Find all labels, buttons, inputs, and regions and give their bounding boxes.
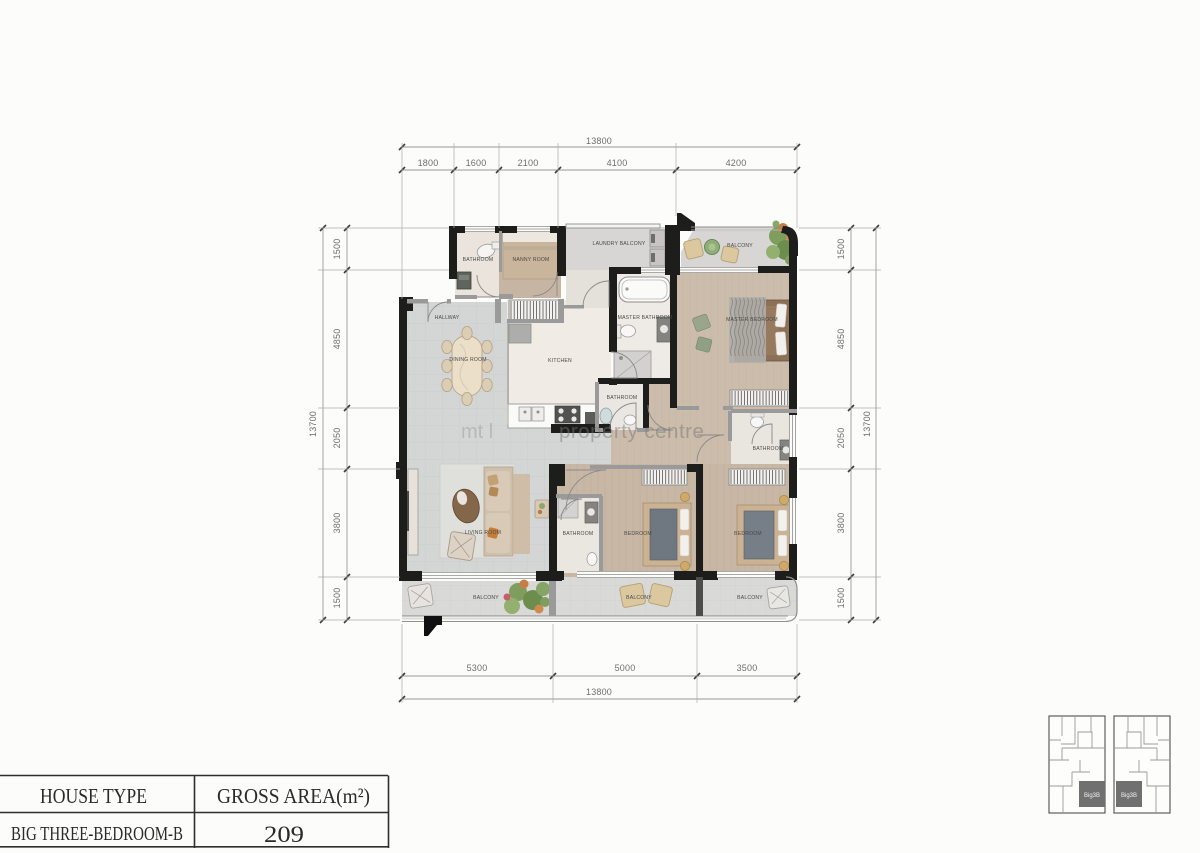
svg-text:BATHROOM: BATHROOM	[753, 446, 784, 452]
svg-text:BATHROOM: BATHROOM	[463, 257, 494, 263]
svg-text:NANNY ROOM: NANNY ROOM	[513, 257, 550, 263]
svg-text:mt l: mt l	[461, 421, 493, 443]
svg-text:BIG THREE-BEDROOM-B: BIG THREE-BEDROOM-B	[11, 824, 183, 845]
svg-text:13800: 13800	[586, 136, 612, 146]
svg-text:MASTER BATHROOM: MASTER BATHROOM	[618, 315, 673, 321]
svg-text:HALLWAY: HALLWAY	[435, 315, 460, 321]
svg-text:Big3B: Big3B	[1121, 793, 1137, 799]
svg-text:13700: 13700	[862, 411, 872, 437]
svg-text:13700: 13700	[308, 411, 318, 437]
svg-text:BALCONY: BALCONY	[727, 243, 753, 249]
svg-text:MASTER BEDROOM: MASTER BEDROOM	[726, 317, 778, 323]
svg-text:1500: 1500	[836, 588, 846, 609]
svg-text:BEDROOM: BEDROOM	[624, 531, 652, 537]
svg-text:BEDROOM: BEDROOM	[734, 531, 762, 537]
svg-text:3800: 3800	[836, 513, 846, 534]
svg-text:4850: 4850	[836, 329, 846, 350]
svg-text:BALCONY: BALCONY	[473, 595, 499, 601]
svg-text:BALCONY: BALCONY	[626, 595, 652, 601]
svg-text:2050: 2050	[332, 428, 342, 449]
svg-text:4200: 4200	[726, 158, 747, 168]
svg-text:13800: 13800	[586, 687, 612, 697]
svg-text:5300: 5300	[467, 663, 488, 673]
svg-text:2050: 2050	[836, 428, 846, 449]
svg-text:BATHROOM: BATHROOM	[563, 531, 594, 537]
svg-text:LIVING ROOM: LIVING ROOM	[465, 530, 501, 536]
svg-text:HOUSE TYPE: HOUSE TYPE	[40, 784, 147, 808]
svg-text:1800: 1800	[418, 158, 439, 168]
svg-text:3500: 3500	[737, 663, 758, 673]
svg-text:1500: 1500	[332, 239, 342, 260]
svg-text:4100: 4100	[607, 158, 628, 168]
svg-text:GROSS AREA(m²): GROSS AREA(m²)	[217, 784, 370, 808]
svg-text:1500: 1500	[836, 239, 846, 260]
svg-text:1600: 1600	[466, 158, 487, 168]
svg-text:KITCHEN: KITCHEN	[548, 358, 572, 364]
svg-text:BALCONY: BALCONY	[737, 595, 763, 601]
svg-text:209: 209	[264, 822, 304, 847]
svg-text:Big3B: Big3B	[1084, 793, 1100, 799]
svg-text:1500: 1500	[332, 588, 342, 609]
svg-text:property centre: property centre	[559, 420, 704, 443]
svg-text:5000: 5000	[615, 663, 636, 673]
svg-text:DINING ROOM: DINING ROOM	[449, 357, 486, 363]
svg-text:2100: 2100	[518, 158, 539, 168]
svg-text:3800: 3800	[332, 513, 342, 534]
svg-text:BATHROOM: BATHROOM	[607, 395, 638, 401]
svg-text:LAUNDRY BALCONY: LAUNDRY BALCONY	[593, 241, 646, 247]
svg-text:4850: 4850	[332, 329, 342, 350]
